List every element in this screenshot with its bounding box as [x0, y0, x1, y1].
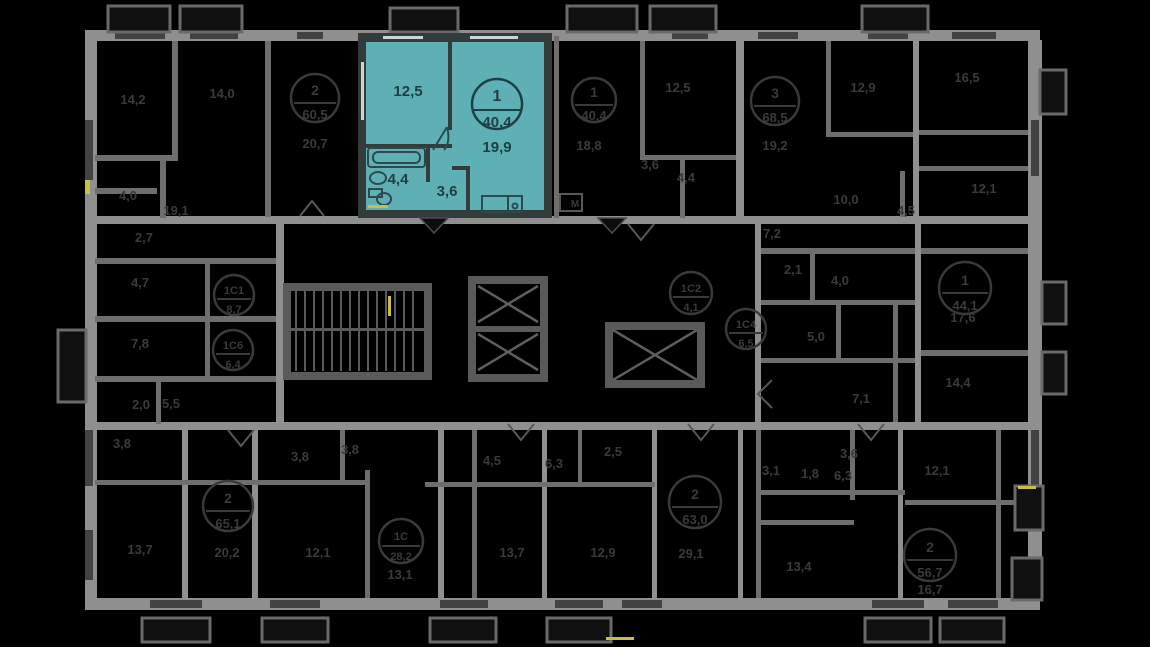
wall-partition [893, 305, 898, 422]
accent-tick [85, 180, 90, 194]
washer-label: М [571, 199, 579, 210]
balcony [547, 618, 611, 642]
apartment-area-label: 4,1 [683, 302, 698, 314]
wall-partition [736, 33, 744, 218]
room-area-label: 4,4 [388, 171, 410, 188]
apartment-area-label: 65,1 [215, 516, 240, 531]
apartment-area-label: 60,5 [302, 107, 327, 122]
wall-partition [472, 430, 477, 598]
window-icon [952, 32, 996, 39]
window-icon [297, 32, 323, 39]
wall-partition [438, 430, 444, 598]
room-area-label: 19,1 [163, 203, 188, 218]
window-icon [85, 530, 93, 580]
wall-partition [836, 305, 841, 361]
room-area-label: 2,0 [132, 397, 150, 412]
apartment-area-label: 8,7 [226, 304, 241, 316]
room-area-label: 2,5 [604, 444, 622, 459]
balcony [1015, 486, 1043, 530]
balcony [1042, 282, 1066, 324]
room-area-label: 4,0 [831, 273, 849, 288]
room-area-label: 29,1 [678, 546, 703, 561]
apartment-area-label: 6,4 [225, 359, 241, 371]
wall-partition [640, 41, 645, 155]
apartment-area-label: 56,7 [917, 565, 942, 580]
window-icon [1031, 120, 1039, 176]
apartment-wall [544, 33, 552, 218]
balcony [58, 330, 86, 402]
room-area-label: 12,5 [393, 83, 422, 100]
window-icon [150, 600, 202, 608]
accent-tick [606, 637, 634, 640]
room-area-label: 13,7 [127, 542, 152, 557]
balcony [1042, 352, 1066, 394]
window-icon [872, 600, 924, 608]
apartment-type-label: 2 [224, 490, 232, 506]
room-area-label: 3,6 [437, 183, 458, 200]
apartment-wall [358, 33, 366, 218]
balcony [1012, 558, 1042, 600]
room-area-label: 19,9 [482, 139, 511, 156]
wall-partition [996, 430, 1001, 598]
room-area-label: 4,5 [483, 453, 501, 468]
room-area-label: 19,2 [762, 138, 787, 153]
room-area-label: 5,5 [162, 396, 180, 411]
room-area-label: 4,5 [897, 203, 915, 218]
apartment-type-label: 3 [771, 85, 779, 101]
apartment-type-label: 1С1 [224, 285, 244, 297]
apartment-type-label: 1 [590, 84, 598, 100]
wall-partition [850, 430, 855, 500]
balcony [142, 618, 210, 642]
room-area-label: 7,1 [852, 391, 870, 406]
apartment-wall [426, 148, 430, 182]
balcony [180, 6, 242, 32]
room-area-label: 17,6 [950, 310, 975, 325]
wall-partition [760, 490, 905, 495]
apartment-type-label: 1С6 [223, 340, 243, 352]
wall-partition [761, 248, 1028, 254]
room-area-label: 13,1 [387, 567, 412, 582]
room-area-label: 3,6 [840, 446, 858, 461]
window-icon [85, 430, 93, 486]
wall-partition [919, 130, 1028, 135]
apartment-type-label: 2 [691, 486, 699, 502]
room-area-label: 6,3 [834, 468, 852, 483]
wall-partition [921, 350, 1028, 356]
apartment-area-label: 68,5 [762, 110, 787, 125]
apartment-wall [448, 42, 452, 130]
wall-partition [826, 132, 918, 137]
wall-partition [756, 430, 761, 598]
room-area-label: 12,9 [590, 545, 615, 560]
room-area-label: 20,2 [214, 545, 239, 560]
wall-partition [760, 520, 854, 525]
room-area-label: 3,6 [641, 157, 659, 172]
room-area-label: 4,4 [677, 170, 696, 185]
window-icon [948, 600, 998, 608]
wall-partition [905, 500, 1028, 505]
apartment-type-label: 1С4 [736, 319, 757, 331]
wall-partition [554, 36, 559, 218]
room-area-label: 16,5 [954, 70, 979, 85]
apartment-area-label: 28,2 [390, 551, 411, 563]
highlighted-apartment[interactable]: 12,5 19,9 4,4 3,6 1 40,4 [358, 33, 552, 233]
window-icon [361, 62, 364, 120]
window-icon [555, 600, 603, 608]
wall-partition [276, 224, 284, 424]
wall-corridor-top [97, 216, 1028, 224]
balcony [865, 618, 931, 642]
wall-partition [652, 430, 657, 598]
room-area-label: 14,4 [945, 375, 971, 390]
room-area-label: 4,7 [131, 275, 149, 290]
room-area-label: 6,3 [545, 456, 563, 471]
room-area-label: 1,8 [801, 466, 819, 481]
balcony [262, 618, 328, 642]
room-area-label: 4,0 [119, 188, 137, 203]
wall-partition [95, 258, 276, 264]
wall-partition [680, 160, 685, 218]
balcony [650, 6, 716, 32]
wall-partition [95, 376, 276, 382]
window-icon [622, 600, 662, 608]
room-area-label: 18,8 [576, 138, 601, 153]
accent-tick [368, 205, 388, 208]
wall-partition [898, 430, 903, 598]
room-area-label: 5,0 [807, 329, 825, 344]
wall-partition [95, 316, 276, 322]
room-area-label: 14,2 [120, 92, 145, 107]
wall-partition [810, 254, 815, 304]
apartment-type-label: 1 [493, 88, 502, 105]
window-icon [85, 120, 93, 180]
balcony [1040, 70, 1066, 114]
room-area-label: 7,2 [763, 226, 781, 241]
wall-partition [425, 482, 655, 487]
room-area-label: 3,8 [341, 442, 359, 457]
window-icon [270, 600, 320, 608]
wall-partition [265, 41, 271, 217]
room-area-label: 12,1 [305, 545, 330, 560]
apartment-area-label: 40,4 [482, 114, 512, 131]
apartment-type-label: 1С [394, 531, 408, 543]
wall-partition [738, 430, 743, 598]
room-area-label: 3,8 [113, 436, 131, 451]
apartment-area-label: 40,4 [581, 108, 607, 123]
accent-tick [388, 296, 391, 316]
room-area-label: 13,4 [786, 559, 812, 574]
room-area-label: 7,8 [131, 336, 149, 351]
room-area-label: 14,0 [209, 86, 234, 101]
window-icon [470, 36, 518, 39]
room-area-label: 13,7 [499, 545, 524, 560]
room-area-label: 20,7 [302, 136, 327, 151]
floorplan-stage: 12,5 19,9 4,4 3,6 1 40,4 1 40,4 2 60,5 3… [0, 0, 1150, 647]
apartment-area-label: 63,0 [682, 512, 707, 527]
room-area-label: 3,1 [762, 463, 780, 478]
window-icon [383, 36, 423, 39]
wall-partition [761, 300, 921, 305]
balcony [108, 6, 170, 32]
window-icon [1031, 430, 1039, 486]
apartment-type-label: 2 [311, 82, 319, 98]
floorplan-canvas: 12,5 19,9 4,4 3,6 1 40,4 1 40,4 2 60,5 3… [0, 0, 1150, 647]
balcony [567, 6, 637, 32]
wall-partition [182, 430, 188, 598]
wall-partition [826, 41, 831, 132]
wall-partition [156, 382, 161, 424]
apartment-wall [466, 166, 470, 210]
room-area-label: 12,5 [665, 80, 690, 95]
room-area-label: 12,1 [924, 463, 949, 478]
wall-partition [365, 470, 370, 598]
room-area-label: 2,1 [784, 262, 802, 277]
room-area-label: 16,7 [917, 582, 942, 597]
wall-corridor-bottom [97, 422, 1028, 430]
wall-partition [205, 260, 210, 376]
apartment-type-label: 1 [961, 272, 969, 288]
window-icon [758, 32, 798, 39]
wall-partition [915, 224, 921, 424]
room-area-label: 2,7 [135, 230, 153, 245]
balcony [390, 8, 458, 32]
wall-partition [578, 430, 582, 482]
apartment-type-label: 1С2 [681, 283, 701, 295]
accent-tick [1018, 486, 1036, 489]
balcony [862, 6, 928, 32]
wall-partition [913, 41, 919, 217]
window-icon [440, 600, 488, 608]
apartment-type-label: 2 [926, 539, 934, 555]
room-area-label: 12,9 [850, 80, 875, 95]
balcony [940, 618, 1004, 642]
apartment-area-label: 6,5 [738, 338, 753, 350]
wall-partition [172, 41, 178, 161]
room-area-label: 10,0 [833, 192, 858, 207]
room-area-label: 12,1 [971, 181, 996, 196]
balcony [430, 618, 496, 642]
room-area-label: 3,8 [291, 449, 309, 464]
wall-partition [919, 166, 1028, 171]
